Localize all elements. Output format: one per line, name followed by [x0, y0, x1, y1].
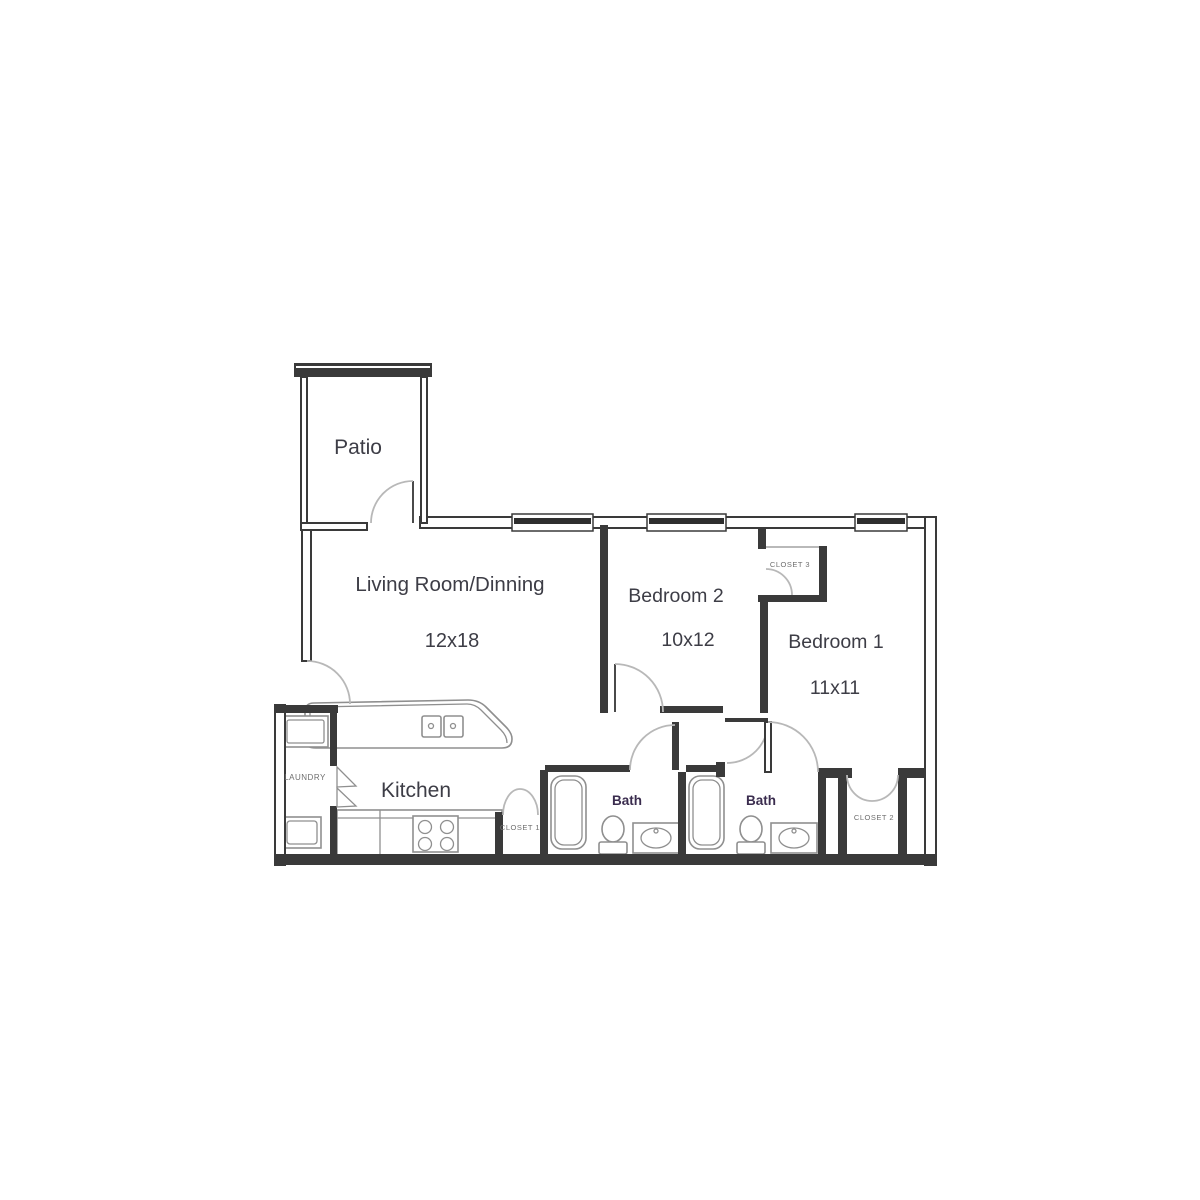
patio-wall-left [301, 377, 307, 530]
hall-divider-wall [672, 722, 679, 770]
kitchen-sink-basin-right [444, 716, 463, 737]
patio-label: Patio [334, 436, 382, 459]
laundry-label: LAUNDRY [284, 773, 326, 782]
floor-plan-page: Patio Living Room/Dinning 12x18 Bedroom … [0, 0, 1200, 1200]
laundry-bifold-bottom [337, 788, 356, 807]
closet1-label: CLOSET 1 [500, 823, 540, 832]
toilet-bowl [740, 816, 762, 842]
bedroom2-label: Bedroom 2 [628, 585, 723, 607]
bath1-wall-left [540, 770, 548, 855]
bedroom2-wall-bottom-thin [725, 718, 768, 722]
patio-rail-bar [294, 363, 432, 377]
wall-left-living [302, 523, 311, 661]
bath2-door-arc [727, 722, 768, 763]
closet2-label: CLOSET 2 [854, 813, 894, 822]
laundry-bifold-top [337, 767, 356, 787]
bedroom2-door-arc [615, 664, 663, 712]
laundry-wall-right-upper [330, 713, 337, 766]
living-room-label: Living Room/Dinning [355, 573, 544, 596]
bath1-wall-top [545, 765, 630, 772]
window-bedroom2 [647, 514, 726, 531]
window-living [512, 514, 593, 531]
closet2-door-arc-right [872, 775, 898, 801]
entry-door-arc [307, 661, 350, 704]
laundry-wall-top [275, 705, 338, 713]
bedroom2-bedroom1-divider-wall [760, 600, 768, 713]
laundry-fixtures [283, 716, 328, 848]
bedroom1-label: Bedroom 1 [788, 631, 883, 653]
toilet-tank [599, 842, 627, 854]
living-bedroom2-divider-wall [600, 525, 608, 713]
bath2-wall-top [686, 765, 718, 772]
bedroom2-wall-bottom [660, 706, 723, 713]
floor-plan-drawing: Patio Living Room/Dinning 12x18 Bedroom … [0, 0, 1200, 1200]
closet3-wall-stub [758, 528, 766, 549]
bath2-label: Bath [746, 793, 776, 808]
closet1-wall-left [495, 812, 503, 855]
closet3-wall-right [819, 546, 827, 602]
closet2-wall-right [898, 772, 907, 855]
closet3-label: CLOSET 3 [770, 560, 810, 569]
bath2-fixtures [689, 776, 817, 854]
bedroom1-door-leaf [765, 722, 771, 772]
bedroom2-dims: 10x12 [661, 629, 714, 651]
bath1-bath2-divider-wall [678, 772, 686, 855]
wall-left-lower [275, 705, 285, 865]
closet1-bifold-doors [503, 789, 538, 815]
labels: Patio Living Room/Dinning 12x18 Bedroom … [284, 436, 894, 832]
toilet-tank [737, 842, 765, 854]
patio-rail [294, 363, 432, 377]
patio-wall-right [421, 377, 427, 523]
bath2-wall-pillar [716, 762, 725, 777]
bathtub [551, 776, 586, 849]
bedroom1-door-arc [768, 722, 818, 772]
patio-wall-bottom [301, 523, 367, 530]
kitchen-sink-basin-left [422, 716, 441, 737]
wall-right [925, 517, 936, 865]
bath1-fixtures [551, 776, 679, 854]
patio-rail-stripe [296, 366, 430, 368]
laundry-wall-right-lower [330, 806, 337, 855]
living-room-dims: 12x18 [425, 630, 480, 652]
kitchen-label: Kitchen [381, 779, 451, 802]
window-bedroom1 [855, 514, 907, 531]
bathtub [689, 776, 724, 849]
bedroom1-dims: 11x11 [810, 677, 860, 699]
toilet-bowl [602, 816, 624, 842]
bath2-wall-right [818, 772, 826, 855]
patio-door-arc [371, 481, 413, 523]
closet2-wall-left [838, 772, 847, 855]
bath1-label: Bath [612, 793, 642, 808]
wall-bottom [275, 854, 936, 865]
closet2-door-arc-left [847, 775, 872, 801]
bath1-door-arc [630, 725, 675, 770]
closet3-wall-bottom [758, 595, 827, 602]
closet3-door-arc [766, 569, 792, 595]
